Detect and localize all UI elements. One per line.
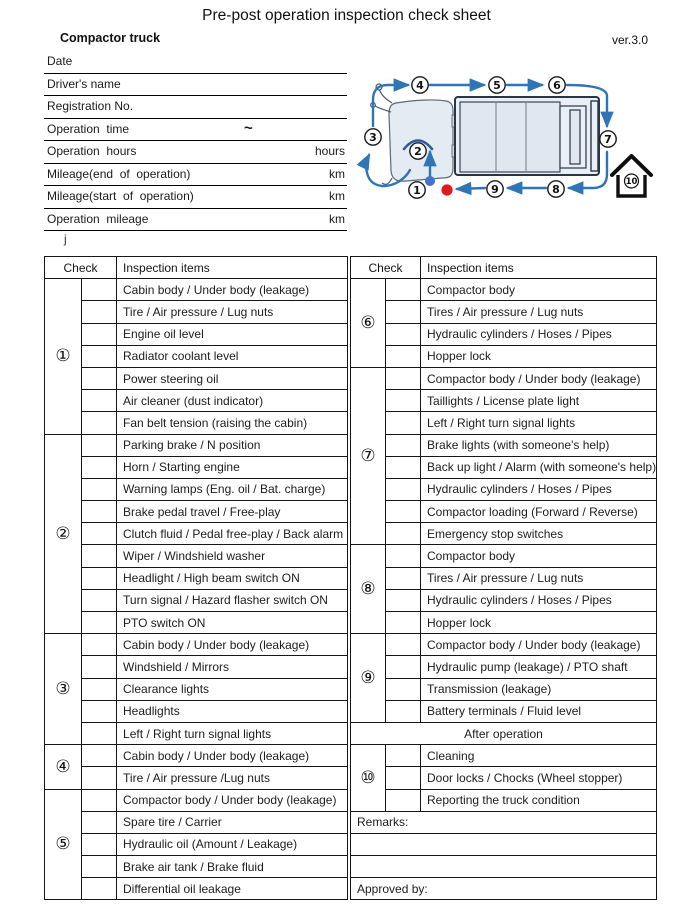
check-cell[interactable] — [386, 700, 421, 722]
after-operation-row: After operation — [351, 722, 657, 744]
form-field-value-area[interactable] — [164, 141, 287, 163]
inspection-item: Back up light / Alarm (with someone's he… — [421, 456, 657, 478]
check-cell[interactable] — [82, 434, 117, 456]
table-row: Headlights — [45, 700, 348, 722]
table-row: Hydraulic cylinders / Hoses / Pipes — [351, 323, 657, 345]
table-row: Left / Right turn signal lights — [45, 722, 348, 744]
remarks-empty-row[interactable] — [351, 833, 657, 855]
table-row: Differential oil leakage — [45, 878, 348, 900]
inspection-item: Tire / Air pressure / Lug nuts — [117, 301, 348, 323]
check-cell[interactable] — [82, 279, 117, 301]
table-row: Turn signal / Hazard flasher switch ON — [45, 589, 348, 611]
table-row: PTO switch ON — [45, 612, 348, 634]
svg-text:5: 5 — [493, 79, 501, 92]
svg-text:8: 8 — [552, 183, 560, 196]
form-field-unit: hours — [315, 144, 345, 158]
stop-marker-6: 6 — [549, 77, 565, 93]
form-field-value-area[interactable] — [164, 119, 287, 141]
inspection-item: Taillights / License plate light — [421, 390, 657, 412]
inspection-item: Hopper lock — [421, 612, 657, 634]
check-cell[interactable] — [386, 434, 421, 456]
stop-marker-4: 4 — [412, 77, 428, 93]
table-row: Clutch fluid / Pedal free-play / Back al… — [45, 523, 348, 545]
inspection-item: Left / Right turn signal lights — [421, 412, 657, 434]
form-field-label: Operation time — [47, 122, 129, 136]
inspection-item: Battery terminals / Fluid level — [421, 700, 657, 722]
inspection-item: Spare tire / Carrier — [117, 811, 348, 833]
form-field-label: Date — [47, 54, 72, 68]
inspection-item: Brake pedal travel / Free-play — [117, 501, 348, 523]
start-point-dot — [441, 184, 452, 195]
table-row: Brake air tank / Brake fluid — [45, 856, 348, 878]
table-row: Headlight / High beam switch ON — [45, 567, 348, 589]
cabin-point-dot — [425, 176, 435, 186]
inspection-item: Windshield / Mirrors — [117, 656, 348, 678]
table-row: Horn / Starting engine — [45, 456, 348, 478]
inspection-item: Hopper lock — [421, 345, 657, 367]
check-cell[interactable] — [82, 545, 117, 567]
tilde-separator: ~ — [244, 120, 253, 137]
table-row: Spare tire / Carrier — [45, 811, 348, 833]
page-title: Pre-post operation inspection check shee… — [0, 7, 693, 25]
inspection-item: Cleaning — [421, 745, 657, 767]
inspection-item: Hydraulic cylinders / Hoses / Pipes — [421, 589, 657, 611]
inspection-item: Compactor loading (Forward / Reverse) — [421, 501, 657, 523]
check-cell[interactable] — [82, 367, 117, 389]
stop-marker-5: 5 — [489, 77, 505, 93]
table-row: Windshield / Mirrors — [45, 656, 348, 678]
form-field-unit: km — [329, 212, 345, 226]
inspection-item: Clearance lights — [117, 678, 348, 700]
table-row: Hydraulic oil (Amount / Leakage) — [45, 833, 348, 855]
inspection-item: Compactor body — [421, 279, 657, 301]
inspection-item: Differential oil leakage — [117, 878, 348, 900]
form-field-registration-no-: Registration No. — [44, 96, 347, 119]
form-field-driver-s-name: Driver's name — [44, 74, 347, 97]
check-cell[interactable] — [82, 612, 117, 634]
svg-text:4: 4 — [416, 79, 424, 92]
inspection-item: Clutch fluid / Pedal free-play / Back al… — [117, 523, 348, 545]
inspection-route-diagram: 1 2 3 4 5 6 7 8 9 10 — [356, 70, 666, 208]
check-cell[interactable] — [386, 523, 421, 545]
check-cell[interactable] — [82, 789, 117, 811]
inspection-item: Hydraulic cylinders / Hoses / Pipes — [421, 478, 657, 500]
garage-house-icon: 10 — [612, 156, 651, 196]
check-table-right: Check Inspection items ⑥Compactor bodyTi… — [350, 256, 657, 900]
left-group-2-number: ② — [45, 434, 82, 634]
inspection-item: Compactor body / Under body (leakage) — [117, 789, 348, 811]
check-cell[interactable] — [82, 589, 117, 611]
check-cell[interactable] — [386, 323, 421, 345]
items-column-header: Inspection items — [421, 257, 657, 279]
table-row: Wiper / Windshield washer — [45, 545, 348, 567]
inspection-item: Brake lights (with someone's help) — [421, 434, 657, 456]
table-row: ①Cabin body / Under body (leakage) — [45, 279, 348, 301]
truck-type-label: Compactor truck — [60, 31, 160, 45]
stop-marker-2: 2 — [410, 143, 426, 159]
check-column-header: Check — [351, 257, 421, 279]
table-row: Brake pedal travel / Free-play — [45, 501, 348, 523]
check-table-left: Check Inspection items ①Cabin body / Und… — [44, 256, 348, 900]
check-cell[interactable] — [82, 833, 117, 855]
svg-text:3: 3 — [369, 131, 377, 144]
check-cell[interactable] — [82, 323, 117, 345]
check-cell[interactable] — [386, 567, 421, 589]
table-row: ⑦Compactor body / Under body (leakage) — [351, 367, 657, 389]
check-cell[interactable] — [82, 678, 117, 700]
stop-marker-8: 8 — [548, 181, 564, 197]
stop-marker-7: 7 — [600, 131, 616, 147]
inspection-item: Hydraulic oil (Amount / Leakage) — [117, 833, 348, 855]
table-row: Tires / Air pressure / Lug nuts — [351, 301, 657, 323]
inspection-item: Parking brake / N position — [117, 434, 348, 456]
table-row: Compactor loading (Forward / Reverse) — [351, 501, 657, 523]
inspection-item: Hydraulic cylinders / Hoses / Pipes — [421, 323, 657, 345]
table-row: ⑨Compactor body / Under body (leakage) — [351, 634, 657, 656]
check-cell[interactable] — [386, 390, 421, 412]
inspection-item: Power steering oil — [117, 367, 348, 389]
table-row: ⑧Compactor body — [351, 545, 657, 567]
table-row: Transmission (leakage) — [351, 678, 657, 700]
remarks-row[interactable]: Remarks: — [351, 811, 657, 833]
table-row: Power steering oil — [45, 367, 348, 389]
check-cell[interactable] — [82, 567, 117, 589]
form-field-value-area[interactable] — [164, 51, 287, 73]
check-cell[interactable] — [386, 545, 421, 567]
check-cell[interactable] — [386, 767, 421, 789]
table-row: Warning lamps (Eng. oil / Bat. charge) — [45, 478, 348, 500]
table-row: ⑥Compactor body — [351, 279, 657, 301]
check-cell[interactable] — [82, 745, 117, 767]
inspection-item: Tires / Air pressure / Lug nuts — [421, 301, 657, 323]
inspection-item: Left / Right turn signal lights — [117, 722, 348, 744]
table-row: Left / Right turn signal lights — [351, 412, 657, 434]
table-row — [351, 856, 657, 878]
check-column-header: Check — [45, 257, 117, 279]
table-row: Hydraulic cylinders / Hoses / Pipes — [351, 589, 657, 611]
check-cell[interactable] — [82, 767, 117, 789]
check-cell[interactable] — [386, 279, 421, 301]
inspection-item: Horn / Starting engine — [117, 456, 348, 478]
check-cell[interactable] — [386, 501, 421, 523]
table-row: Taillights / License plate light — [351, 390, 657, 412]
inspection-item: Cabin body / Under body (leakage) — [117, 745, 348, 767]
inspection-item: Brake air tank / Brake fluid — [117, 856, 348, 878]
left-group-4-number: ④ — [45, 745, 82, 789]
table-row: Clearance lights — [45, 678, 348, 700]
table-row: Radiator coolant level — [45, 345, 348, 367]
form-field-mileage-start-of-operation-: Mileage(start of operation)km — [44, 186, 347, 209]
check-cell[interactable] — [82, 523, 117, 545]
inspection-item: Warning lamps (Eng. oil / Bat. charge) — [117, 478, 348, 500]
form-field-value-area[interactable] — [164, 209, 287, 231]
check-cell[interactable] — [386, 612, 421, 634]
inspection-item: Compactor body — [421, 545, 657, 567]
check-cell[interactable] — [82, 501, 117, 523]
check-cell[interactable] — [386, 478, 421, 500]
right-group-1-number: ⑥ — [351, 279, 386, 368]
form-field-label: Driver's name — [47, 77, 121, 91]
version-label: ver.3.0 — [612, 33, 648, 47]
table-row: Air cleaner (dust indicator) — [45, 390, 348, 412]
table-row: Approved by: — [351, 878, 657, 900]
inspection-item: Wiper / Windshield washer — [117, 545, 348, 567]
check-cell[interactable] — [82, 345, 117, 367]
truck-top-view — [371, 84, 599, 184]
inspection-item: Headlight / High beam switch ON — [117, 567, 348, 589]
remarks-empty-row[interactable] — [351, 856, 657, 878]
table-row: After operation — [351, 722, 657, 744]
check-cell[interactable] — [386, 745, 421, 767]
check-cell[interactable] — [82, 478, 117, 500]
items-column-header: Inspection items — [117, 257, 348, 279]
inspection-item: Compactor body / Under body (leakage) — [421, 634, 657, 656]
table-row: Tire / Air pressure / Lug nuts — [45, 301, 348, 323]
check-cell[interactable] — [386, 789, 421, 811]
svg-text:6: 6 — [553, 79, 561, 92]
svg-text:9: 9 — [491, 183, 499, 196]
table-row: Fan belt tension (raising the cabin) — [45, 412, 348, 434]
table-row: ③Cabin body / Under body (leakage) — [45, 634, 348, 656]
inspection-item: Radiator coolant level — [117, 345, 348, 367]
svg-text:7: 7 — [604, 133, 612, 146]
form-field-value-area[interactable] — [164, 74, 287, 96]
check-cell[interactable] — [82, 390, 117, 412]
table-row: Back up light / Alarm (with someone's he… — [351, 456, 657, 478]
check-cell[interactable] — [386, 678, 421, 700]
inspection-item: Transmission (leakage) — [421, 678, 657, 700]
table-row: Tires / Air pressure / Lug nuts — [351, 567, 657, 589]
table-row: ⑩Cleaning — [351, 745, 657, 767]
inspection-item: Compactor body / Under body (leakage) — [421, 367, 657, 389]
inspection-item: Air cleaner (dust indicator) — [117, 390, 348, 412]
inspection-item: Cabin body / Under body (leakage) — [117, 634, 348, 656]
svg-text:10: 10 — [626, 177, 638, 187]
inspection-item: Hydraulic pump (leakage) / PTO shaft — [421, 656, 657, 678]
stop-marker-3: 3 — [365, 129, 381, 145]
inspection-item: Fan belt tension (raising the cabin) — [117, 412, 348, 434]
table-row: Hopper lock — [351, 345, 657, 367]
svg-text:1: 1 — [413, 184, 421, 197]
check-cell[interactable] — [386, 367, 421, 389]
table-row: Remarks: — [351, 811, 657, 833]
form-field-value-area[interactable] — [164, 164, 287, 186]
inspection-item: Tires / Air pressure / Lug nuts — [421, 567, 657, 589]
right-group-4-number: ⑨ — [351, 634, 386, 723]
check-cell[interactable] — [82, 700, 117, 722]
check-cell[interactable] — [386, 345, 421, 367]
form-field-unit: km — [329, 189, 345, 203]
stop-marker-9: 9 — [487, 181, 503, 197]
form-field-operation-hours: Operation hourshours — [44, 141, 347, 164]
left-group-3-number: ③ — [45, 634, 82, 745]
table-row: ②Parking brake / N position — [45, 434, 348, 456]
check-cell[interactable] — [386, 456, 421, 478]
check-cell[interactable] — [386, 656, 421, 678]
left-group-1-number: ① — [45, 279, 82, 434]
check-cell[interactable] — [386, 589, 421, 611]
check-cell[interactable] — [386, 412, 421, 434]
check-cell[interactable] — [82, 301, 117, 323]
table-row — [351, 833, 657, 855]
table-row: Brake lights (with someone's help) — [351, 434, 657, 456]
form-field-mileage-end-of-operation-: Mileage(end of operation)km — [44, 164, 347, 187]
table-row: Hopper lock — [351, 612, 657, 634]
left-group-5-number: ⑤ — [45, 789, 82, 900]
form-field-label: Registration No. — [47, 99, 133, 113]
table-row: Reporting the truck condition — [351, 789, 657, 811]
check-cell[interactable] — [82, 878, 117, 900]
table-row: Hydraulic cylinders / Hoses / Pipes — [351, 478, 657, 500]
right-group-2-number: ⑦ — [351, 367, 386, 545]
form-field-label: Operation hours — [47, 144, 136, 158]
inspection-item: Reporting the truck condition — [421, 789, 657, 811]
table-row: ⑤Compactor body / Under body (leakage) — [45, 789, 348, 811]
check-cell[interactable] — [82, 634, 117, 656]
table-row: Engine oil level — [45, 323, 348, 345]
form-field-operation-mileage: Operation mileagekm — [44, 209, 347, 232]
inspection-item: Emergency stop switches — [421, 523, 657, 545]
inspection-item: Tire / Air pressure /Lug nuts — [117, 767, 348, 789]
inspection-item: PTO switch ON — [117, 612, 348, 634]
check-cell[interactable] — [82, 856, 117, 878]
form-field-value-area[interactable] — [164, 96, 287, 118]
check-cell[interactable] — [82, 656, 117, 678]
form-field-operation-time: Operation time~ — [44, 119, 347, 142]
check-cell[interactable] — [82, 412, 117, 434]
stop-marker-1: 1 — [409, 182, 425, 198]
form-field-date: Date — [44, 51, 347, 74]
table-row: Door locks / Chocks (Wheel stopper) — [351, 767, 657, 789]
inspection-item: Turn signal / Hazard flasher switch ON — [117, 589, 348, 611]
table-row: Emergency stop switches — [351, 523, 657, 545]
right-after-group-1-number: ⑩ — [351, 745, 386, 812]
check-cell[interactable] — [386, 634, 421, 656]
approved-by-row[interactable]: Approved by: — [351, 878, 657, 900]
check-cell[interactable] — [82, 722, 117, 744]
table-row: Hydraulic pump (leakage) / PTO shaft — [351, 656, 657, 678]
operation-info-form: DateDriver's nameRegistration No.Operati… — [44, 51, 347, 231]
svg-text:2: 2 — [414, 145, 422, 158]
inspection-item: Door locks / Chocks (Wheel stopper) — [421, 767, 657, 789]
check-cell[interactable] — [82, 811, 117, 833]
form-field-value-area[interactable] — [164, 186, 287, 208]
check-cell[interactable] — [386, 301, 421, 323]
inspection-check-sheet: Pre-post operation inspection check shee… — [0, 0, 693, 920]
check-cell[interactable] — [82, 456, 117, 478]
inspection-item: Headlights — [117, 700, 348, 722]
form-field-label: Operation mileage — [47, 212, 148, 226]
table-row: Battery terminals / Fluid level — [351, 700, 657, 722]
inspection-item: Engine oil level — [117, 323, 348, 345]
form-field-unit: km — [329, 167, 345, 181]
inspection-item: Cabin body / Under body (leakage) — [117, 279, 348, 301]
table-row: ④Cabin body / Under body (leakage) — [45, 745, 348, 767]
table-row: Tire / Air pressure /Lug nuts — [45, 767, 348, 789]
stray-char: j — [64, 232, 67, 246]
right-group-3-number: ⑧ — [351, 545, 386, 634]
